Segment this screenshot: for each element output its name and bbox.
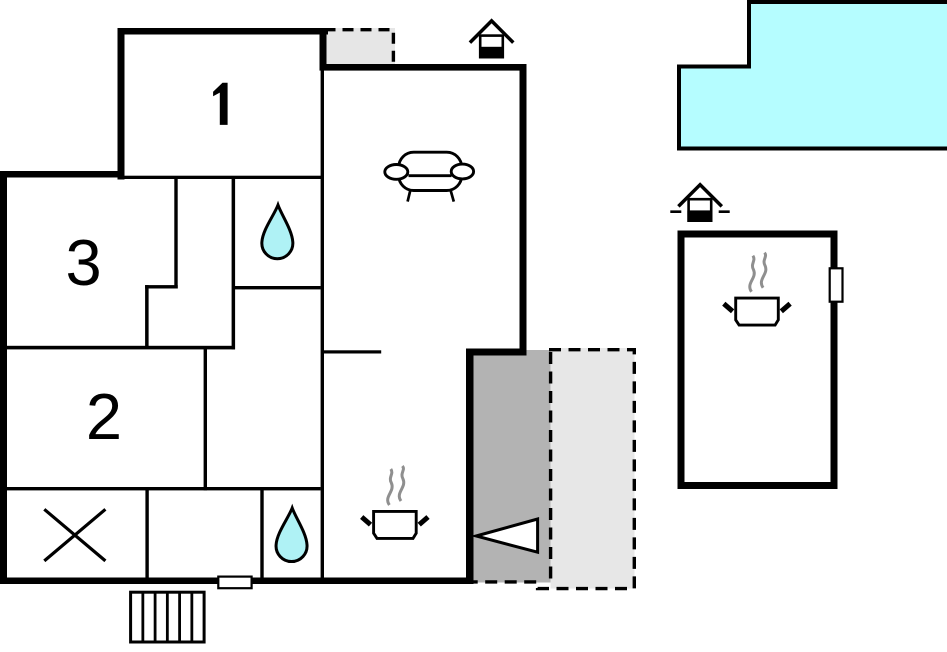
svg-text:3: 3 (66, 226, 102, 299)
svg-text:2: 2 (86, 380, 122, 453)
